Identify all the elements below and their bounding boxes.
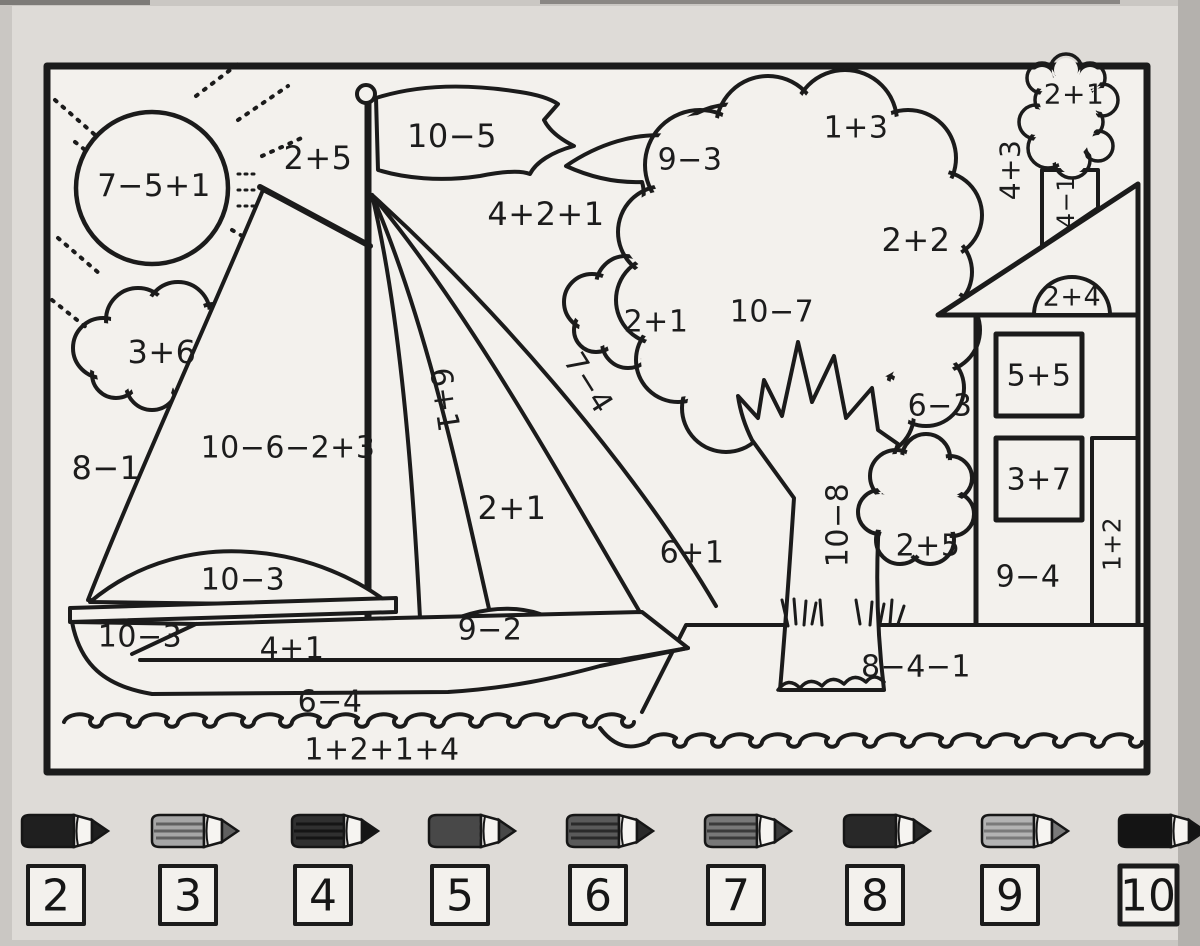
label-sky-left: 8−1 — [71, 449, 140, 487]
label-window-upper: 5+5 — [1007, 359, 1072, 394]
label-bank: 8−4−1 — [861, 650, 971, 685]
worksheet-drawing: 7−5+1 2+5 10−5 4+2+1 9−3 1+3 2+1 4+3 4−1… — [0, 0, 1200, 946]
number-label-4: 4 — [309, 871, 337, 922]
label-attic-window: 2+4 — [1043, 282, 1101, 313]
label-bird: 9−3 — [658, 143, 723, 178]
label-boom-sail: 10−3 — [201, 563, 285, 598]
number-label-10: 10 — [1120, 871, 1176, 922]
number-label-2: 2 — [42, 871, 70, 922]
label-water: 1+2+1+4 — [304, 733, 459, 768]
label-chimney: 4−1 — [1052, 176, 1080, 228]
pencil-10 — [1119, 815, 1200, 847]
label-door: 1+2 — [1098, 517, 1127, 571]
label-hull-left: 10−3 — [98, 620, 182, 655]
label-cloud-mid: 2+1 — [624, 305, 689, 340]
label-stern-sail: 9−2 — [458, 613, 523, 648]
label-sky-right-vertical: 4+3 — [994, 140, 1027, 201]
scan-smudge-top-left — [0, 0, 150, 5]
label-hull-low: 6−4 — [298, 685, 363, 720]
label-hull-mid: 4+1 — [260, 632, 325, 667]
label-foliage-right: 6−3 — [908, 389, 973, 424]
label-cloud-left: 3+6 — [127, 333, 196, 371]
label-bush: 2+5 — [896, 529, 961, 564]
label-sky-mid: 4+2+1 — [487, 195, 604, 233]
number-label-3: 3 — [174, 871, 202, 922]
label-sky-low: 6+1 — [660, 536, 725, 571]
number-label-6: 6 — [584, 871, 612, 922]
label-foliage-mid: 2+2 — [881, 221, 950, 259]
label-window-lower: 3+7 — [1007, 463, 1072, 498]
label-house-wall: 9−4 — [996, 560, 1061, 595]
pencil-legend: 2 3 4 5 — [22, 815, 1200, 924]
number-label-9: 9 — [996, 871, 1024, 922]
label-flag: 10−5 — [407, 117, 497, 155]
mast-finial — [357, 85, 375, 103]
number-label-5: 5 — [446, 871, 474, 922]
label-sail-middle: 2+1 — [477, 489, 546, 527]
number-label-8: 8 — [861, 871, 889, 922]
label-foliage-top: 1+3 — [824, 111, 889, 146]
scan-smudge-top-right — [540, 0, 1120, 4]
label-smoke: 2+1 — [1044, 78, 1105, 111]
label-foliage-left: 10−7 — [730, 295, 814, 330]
number-label-7: 7 — [722, 871, 750, 922]
scan-edge-right — [1178, 0, 1200, 946]
label-trunk: 10−8 — [821, 483, 856, 567]
label-sun: 7−5+1 — [97, 168, 211, 204]
label-mainsail: 10−6−2+3 — [201, 431, 376, 466]
scanned-worksheet-page: 7−5+1 2+5 10−5 4+2+1 9−3 1+3 2+1 4+3 4−1… — [0, 0, 1200, 946]
label-sky-upper-left: 2+5 — [283, 139, 352, 177]
